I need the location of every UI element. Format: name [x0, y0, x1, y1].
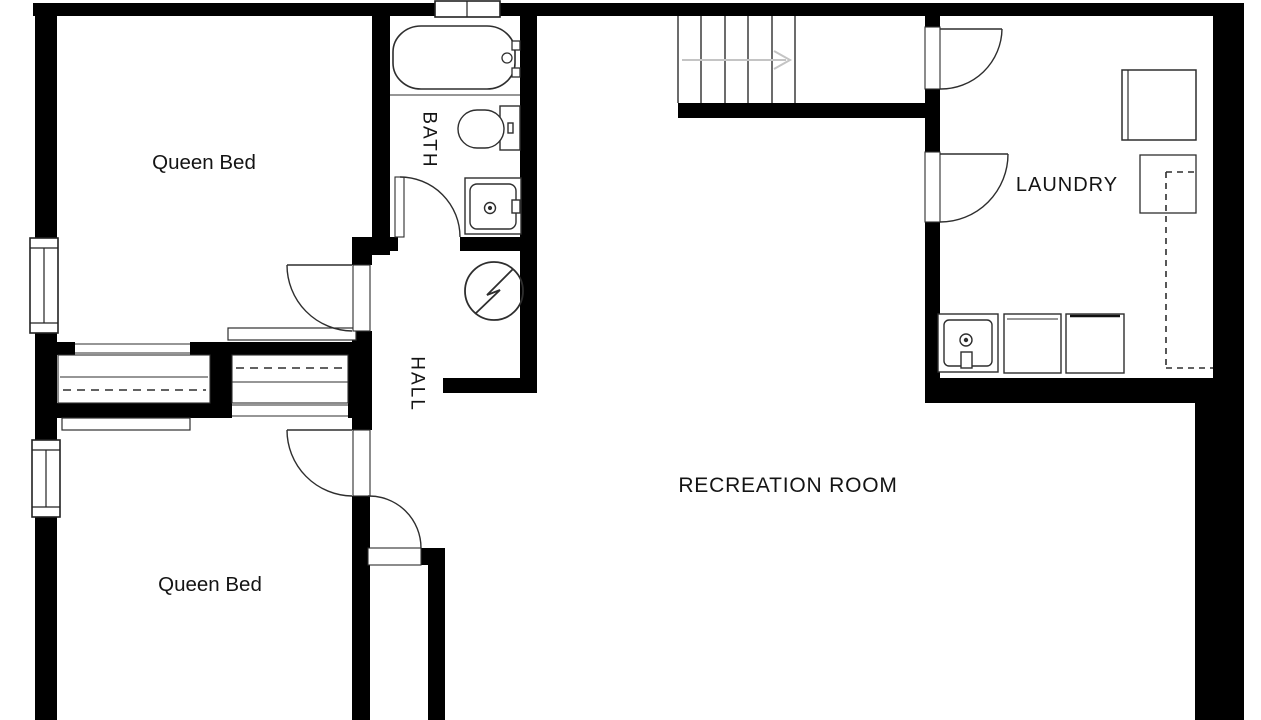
door-laundry-upper [925, 27, 1002, 89]
room-label-recreation: RECREATION ROOM [678, 474, 897, 497]
door-top-bedroom [287, 265, 370, 331]
bathtub [393, 26, 515, 89]
room-label-bath: BATH [419, 111, 440, 168]
wall [520, 16, 537, 393]
walls [33, 3, 1244, 720]
freezer [1122, 70, 1196, 140]
wall [443, 378, 537, 393]
wall [190, 342, 372, 355]
wall [348, 355, 372, 403]
wall [428, 565, 445, 720]
door-hall-south [368, 496, 421, 565]
utility-box [1140, 155, 1196, 213]
wall [210, 355, 232, 403]
laundry-sink [938, 314, 998, 372]
wall [460, 237, 520, 251]
dryer [1066, 314, 1124, 373]
door-laundry-lower [925, 152, 1008, 222]
wall [352, 237, 398, 251]
toilet [458, 106, 520, 150]
room-label-hall: HALL [407, 356, 428, 412]
washer [1004, 314, 1061, 373]
wall [352, 251, 372, 265]
wall [348, 403, 372, 418]
room-label-bedroom-bottom: Queen Bed [158, 573, 262, 596]
bath-fixtures [390, 26, 523, 320]
door-swing-arc [940, 154, 1008, 222]
stairs [678, 16, 795, 103]
bathroom-sink [465, 178, 521, 234]
door-bath [395, 177, 460, 237]
wall [352, 496, 370, 720]
electrical-panel [465, 262, 523, 320]
floor-plan-page: Queen Bed Queen Bed BATH HALL RECREATION… [0, 0, 1261, 720]
wall [1195, 378, 1244, 720]
door-bottom-bedroom [287, 430, 370, 496]
closet-outline [232, 355, 348, 403]
room-label-bedroom-top: Queen Bed [152, 151, 256, 174]
window [30, 238, 58, 333]
wall [57, 403, 232, 418]
wall [925, 16, 940, 27]
laundry-fixtures [938, 70, 1213, 373]
sliding-door-panel [62, 418, 190, 430]
door-swing-arc [368, 496, 421, 548]
wall [372, 16, 390, 255]
lightning-bolt-icon [475, 269, 513, 314]
toilet-flush-button [508, 123, 513, 133]
room-label-laundry: LAUNDRY [1016, 174, 1118, 196]
door-swing-arc [287, 265, 352, 331]
window [435, 1, 500, 17]
stair-direction-arrow [682, 51, 790, 69]
wall [1213, 3, 1244, 403]
wall [925, 378, 1244, 403]
wall [421, 548, 445, 565]
wall [925, 89, 940, 152]
wall [35, 3, 57, 720]
wall [33, 3, 1244, 16]
wall [678, 103, 938, 118]
toilet-bowl [458, 110, 504, 148]
door-swing-arc [940, 29, 1002, 89]
door-swing-arc [400, 177, 460, 237]
door-swing-arc [287, 430, 352, 496]
window [32, 440, 60, 517]
wall [57, 342, 75, 355]
wall [352, 418, 372, 430]
floor-plan-drawing: Queen Bed Queen Bed BATH HALL RECREATION… [0, 0, 1261, 720]
closet-outline [58, 355, 210, 403]
